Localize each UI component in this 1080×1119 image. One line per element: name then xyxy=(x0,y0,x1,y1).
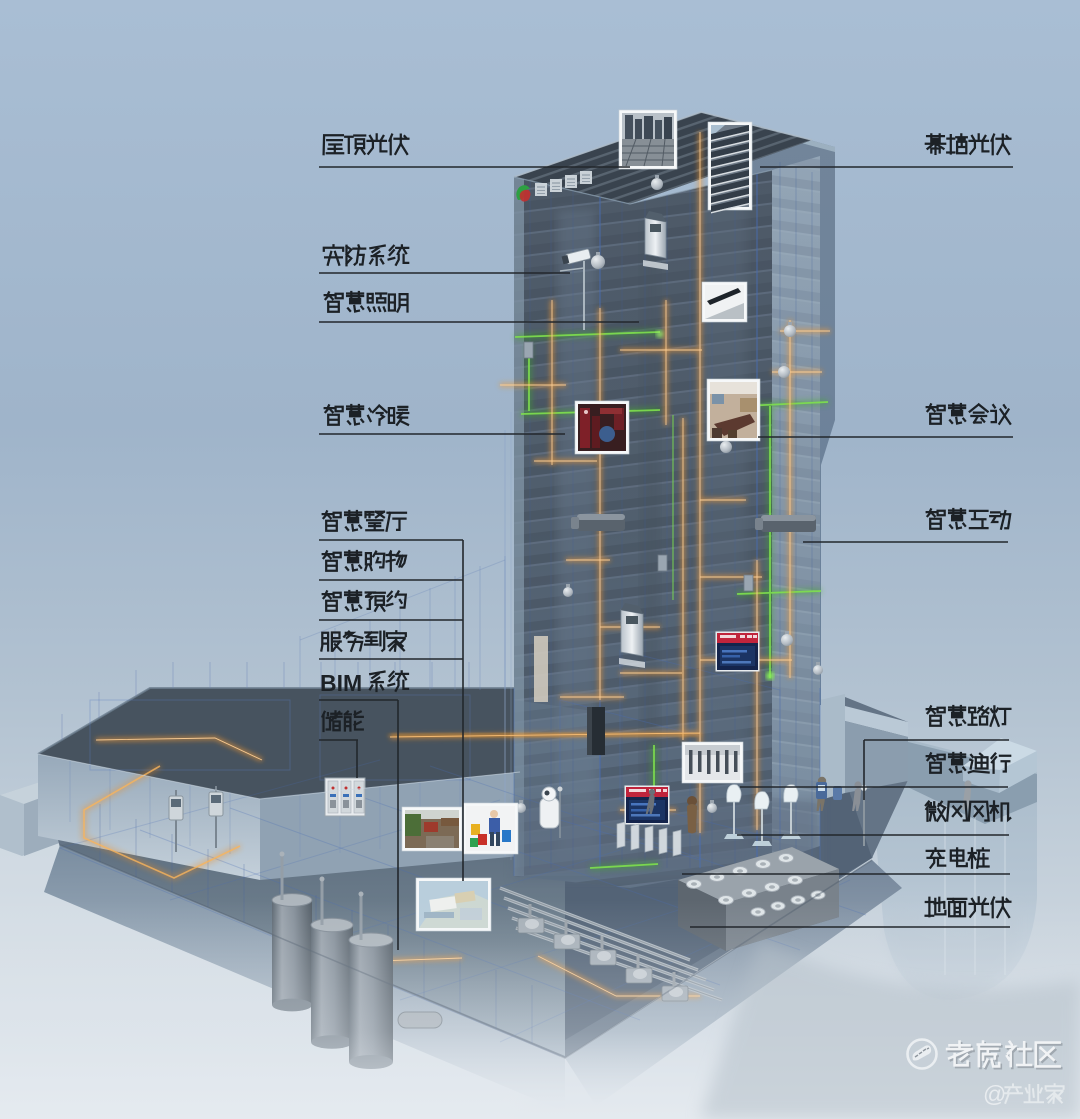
svg-text:BIM: BIM xyxy=(320,670,362,696)
svg-text:@: @ xyxy=(983,1081,1006,1107)
